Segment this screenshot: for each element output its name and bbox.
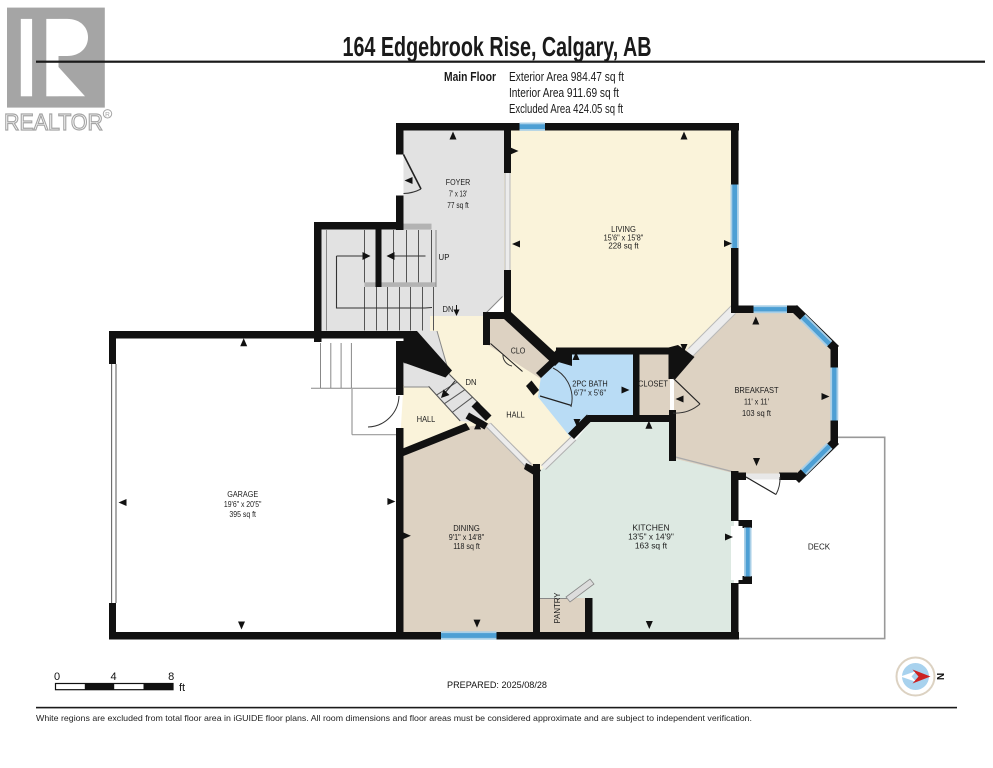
svg-text:FOYER: FOYER	[446, 177, 471, 187]
svg-text:KITCHEN: KITCHEN	[632, 523, 669, 533]
svg-text:395 sq ft: 395 sq ft	[229, 510, 256, 519]
svg-text:164 Edgebrook Rise, Calgary, A: 164 Edgebrook Rise, Calgary, AB	[343, 31, 652, 62]
svg-text:0: 0	[54, 671, 60, 683]
svg-text:UP: UP	[439, 252, 450, 262]
svg-text:228 sq ft: 228 sq ft	[608, 241, 639, 250]
svg-text:Interior Area 911.69 sq ft: Interior Area 911.69 sq ft	[509, 86, 619, 100]
svg-text:CLOSET: CLOSET	[638, 380, 668, 389]
svg-text:Main Floor: Main Floor	[444, 70, 496, 84]
svg-text:REALTOR: REALTOR	[4, 109, 103, 135]
svg-text:9'1" x 14'8": 9'1" x 14'8"	[449, 533, 484, 542]
svg-text:13'5" x 14'9": 13'5" x 14'9"	[628, 533, 674, 542]
svg-text:4: 4	[111, 671, 117, 683]
svg-text:6'7" x 5'6": 6'7" x 5'6"	[574, 389, 606, 398]
svg-text:HALL: HALL	[506, 409, 525, 419]
svg-text:CLO: CLO	[511, 346, 526, 356]
svg-text:PREPARED: 2025/08/28: PREPARED: 2025/08/28	[447, 680, 547, 691]
svg-text:White regions are excluded fro: White regions are excluded from total fl…	[36, 713, 752, 723]
svg-text:DN: DN	[443, 304, 454, 314]
svg-text:HALL: HALL	[417, 414, 436, 424]
svg-text:103 sq ft: 103 sq ft	[742, 409, 772, 418]
svg-text:R: R	[105, 112, 110, 119]
svg-text:BREAKFAST: BREAKFAST	[734, 385, 779, 395]
svg-text:ft: ft	[179, 682, 185, 694]
svg-text:8: 8	[168, 671, 174, 683]
svg-text:19'6" x 20'5": 19'6" x 20'5"	[224, 500, 262, 509]
svg-text:LIVING: LIVING	[611, 224, 636, 234]
svg-text:163 sq ft: 163 sq ft	[635, 542, 668, 551]
svg-text:GARAGE: GARAGE	[227, 489, 258, 499]
svg-text:Excluded Area 424.05 sq ft: Excluded Area 424.05 sq ft	[509, 102, 623, 116]
svg-text:2PC BATH: 2PC BATH	[572, 379, 607, 389]
svg-text:N: N	[934, 673, 945, 680]
svg-text:DINING: DINING	[453, 523, 480, 533]
svg-text:Exterior Area 984.47 sq ft: Exterior Area 984.47 sq ft	[509, 70, 624, 84]
svg-text:DECK: DECK	[808, 542, 831, 552]
svg-text:PANTRY: PANTRY	[552, 592, 562, 623]
svg-text:DN: DN	[466, 377, 477, 387]
svg-text:118 sq ft: 118 sq ft	[453, 542, 480, 551]
svg-text:11' x 11': 11' x 11'	[744, 397, 769, 406]
svg-text:7' x 13': 7' x 13'	[449, 190, 468, 199]
svg-text:77 sq ft: 77 sq ft	[447, 201, 469, 210]
